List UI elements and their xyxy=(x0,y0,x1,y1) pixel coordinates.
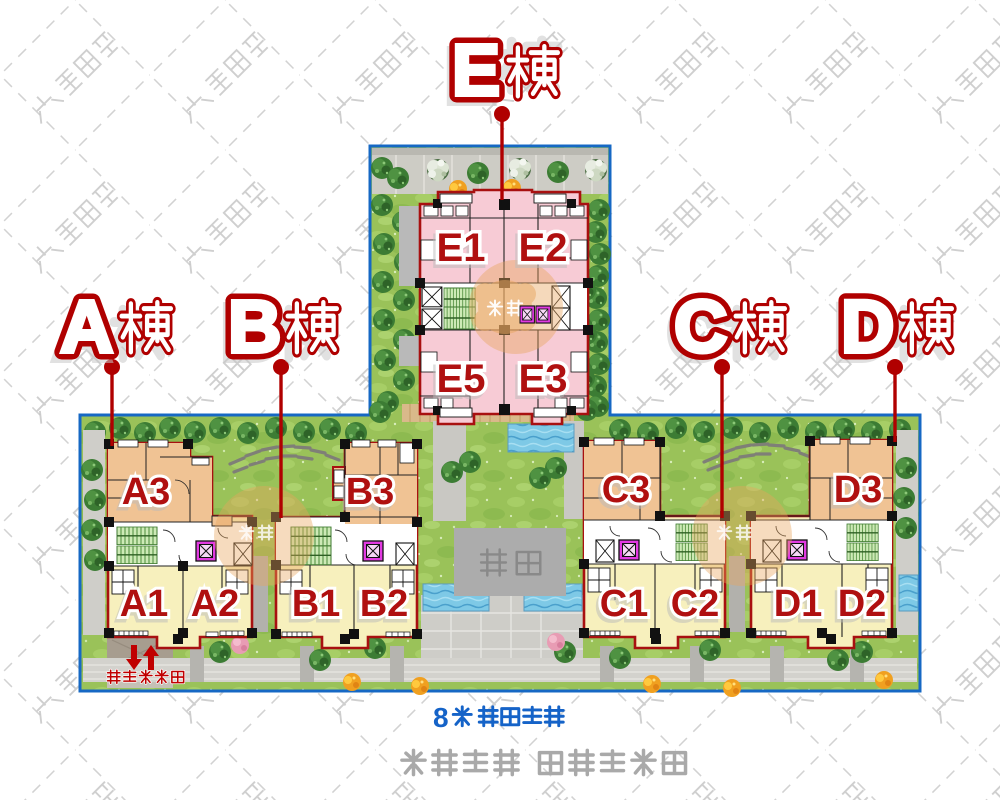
svg-text:C2: C2 xyxy=(671,583,720,625)
svg-text:E1: E1 xyxy=(437,226,486,270)
svg-text:C1: C1 xyxy=(600,583,649,625)
svg-text:D1: D1 xyxy=(774,583,823,625)
svg-text:B1: B1 xyxy=(292,583,341,625)
svg-text:A3: A3 xyxy=(122,471,171,513)
svg-text:C3: C3 xyxy=(602,469,651,511)
svg-text:E3: E3 xyxy=(519,357,568,401)
svg-text:E: E xyxy=(452,31,500,111)
svg-text:D: D xyxy=(841,285,894,368)
svg-text:A2: A2 xyxy=(191,583,240,625)
svg-text:A: A xyxy=(60,285,113,368)
svg-text:D3: D3 xyxy=(834,469,883,511)
svg-text:E5: E5 xyxy=(437,357,486,401)
svg-text:D2: D2 xyxy=(838,583,887,625)
svg-text:B2: B2 xyxy=(360,583,409,625)
svg-text:A1: A1 xyxy=(120,583,169,625)
svg-text:C: C xyxy=(674,285,727,368)
svg-text:8: 8 xyxy=(433,702,449,733)
svg-text:E2: E2 xyxy=(519,226,568,270)
svg-text:B: B xyxy=(228,285,281,368)
svg-text:B3: B3 xyxy=(346,471,395,513)
